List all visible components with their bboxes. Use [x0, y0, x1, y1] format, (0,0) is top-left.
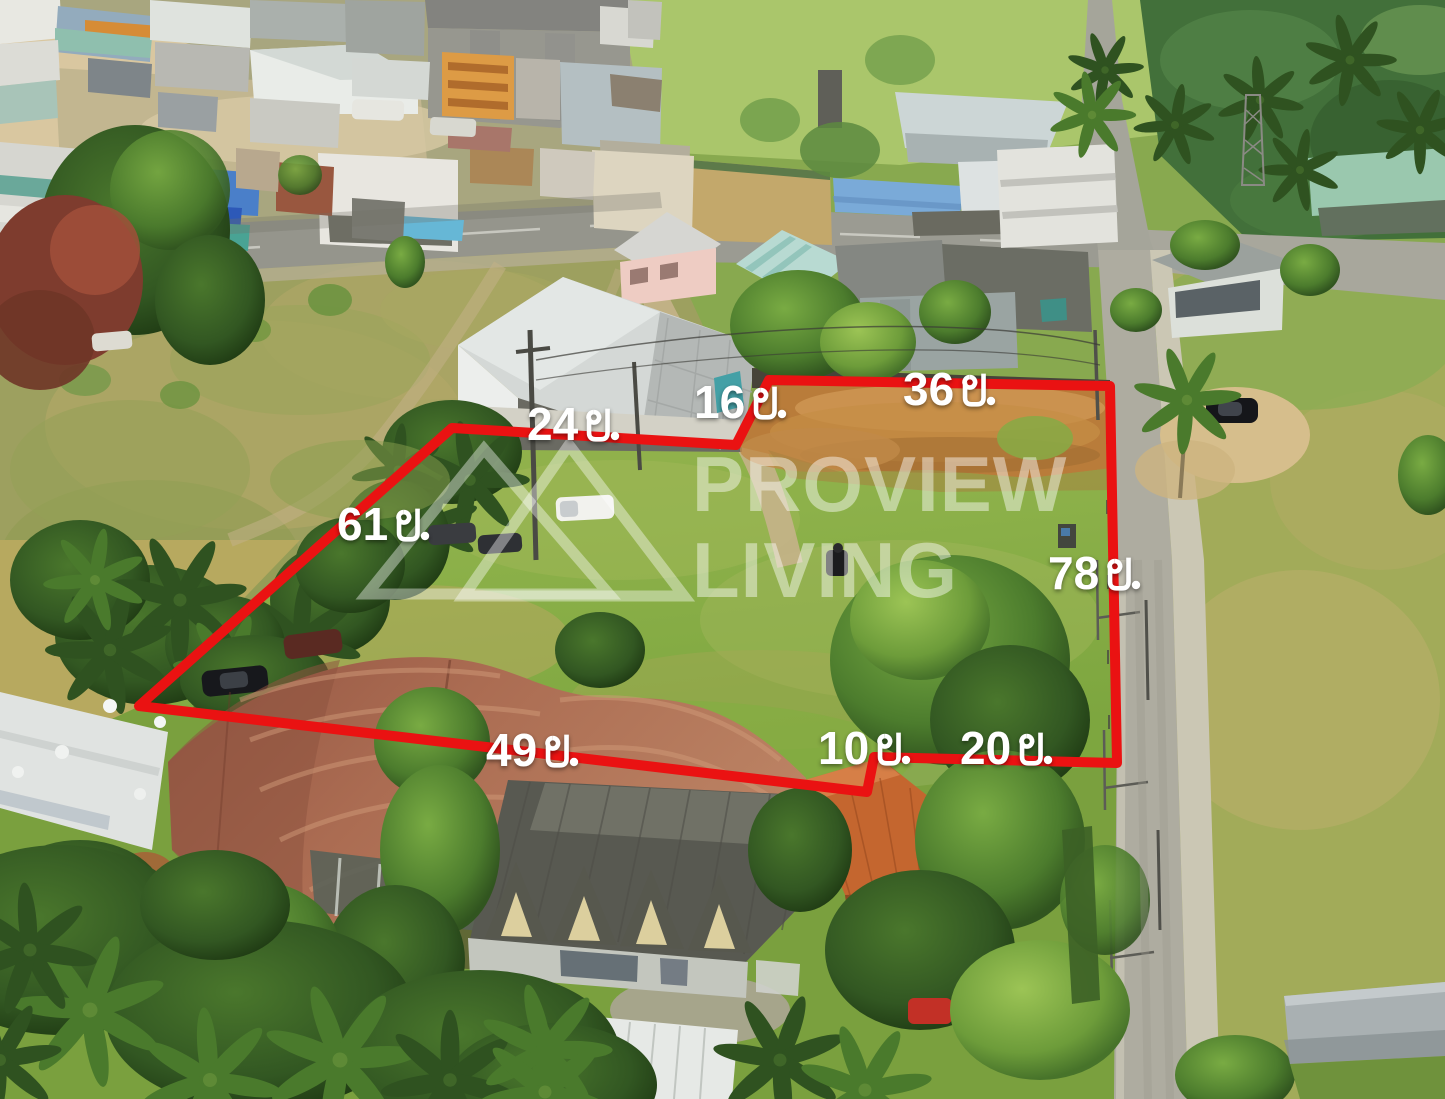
svg-text:PROVIEW: PROVIEW — [692, 440, 1067, 528]
svg-text:78: 78 — [1048, 547, 1099, 599]
svg-text:LIVING: LIVING — [692, 526, 958, 614]
svg-text:24: 24 — [527, 398, 579, 450]
svg-text:16: 16 — [694, 376, 745, 428]
svg-text:61: 61 — [337, 498, 388, 550]
svg-text:49: 49 — [486, 724, 537, 776]
svg-text:10: 10 — [818, 722, 869, 774]
svg-text:20: 20 — [960, 722, 1011, 774]
svg-text:36: 36 — [903, 363, 954, 415]
